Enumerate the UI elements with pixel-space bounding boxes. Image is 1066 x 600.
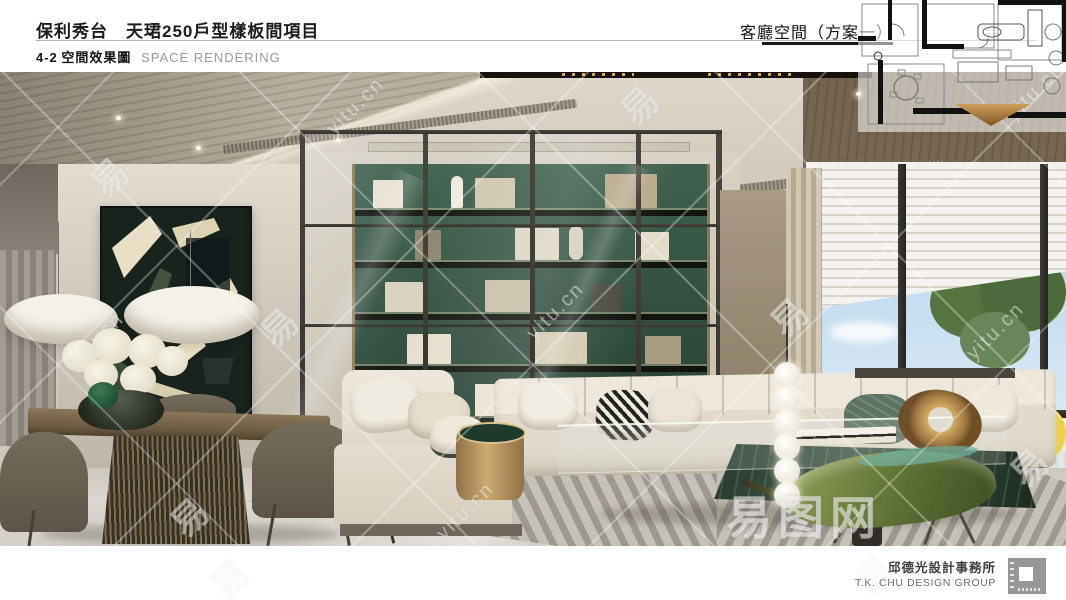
downlight	[196, 146, 201, 150]
floor-lamp-rod	[786, 304, 788, 366]
logo-square-icon	[1019, 567, 1033, 581]
wall-mirror-left	[0, 164, 58, 254]
section-title-zh: 空間效果圖	[61, 50, 131, 65]
firm-logo	[1008, 558, 1046, 594]
track-light	[480, 72, 872, 78]
partition-rail	[300, 130, 722, 134]
green-glass-decor	[88, 382, 118, 408]
logo-marks	[1018, 588, 1042, 591]
pendant-cord	[58, 222, 59, 296]
console-behind-sofa	[855, 368, 1015, 378]
partition-rail	[300, 224, 722, 227]
cloud	[830, 322, 900, 342]
sphere-floor-lamp	[774, 362, 800, 388]
sphere-floor-lamp	[774, 386, 800, 412]
chaise-plinth	[340, 524, 522, 536]
pendant-cord	[190, 230, 191, 290]
page-title: 保利秀台 天珺250戶型樣板間項目	[36, 17, 319, 42]
firm-name-en: T.K. CHU DESIGN GROUP	[855, 577, 996, 590]
floor-plan-thumbnail	[858, 0, 1066, 132]
section-code: 4-2	[36, 50, 58, 65]
sphere-floor-lamp	[774, 458, 800, 484]
section-label: 4-2 空間效果圖 SPACE RENDERING	[36, 47, 281, 66]
pillow	[518, 382, 578, 430]
sphere-floor-lamp	[774, 410, 800, 436]
presentation-page: 保利秀台 天珺250戶型樣板間項目 4-2 空間效果圖 SPACE RENDER…	[0, 0, 1066, 600]
side-table-top	[458, 422, 526, 444]
sphere-floor-lamp	[774, 482, 800, 508]
section-title-en: SPACE RENDERING	[141, 50, 281, 65]
watermark-glyph: 易	[197, 547, 259, 600]
space-rendering-image	[0, 72, 1066, 546]
sphere-floor-lamp	[774, 434, 800, 460]
dining-table-base	[102, 436, 250, 544]
logo-marks	[1010, 562, 1014, 588]
downlight	[116, 116, 121, 120]
firm-name-zh: 邱德光設計事務所	[855, 561, 996, 577]
dining-chair	[0, 432, 88, 532]
tree	[960, 312, 1030, 368]
footer-firm: 邱德光設計事務所 T.K. CHU DESIGN GROUP	[855, 561, 996, 590]
